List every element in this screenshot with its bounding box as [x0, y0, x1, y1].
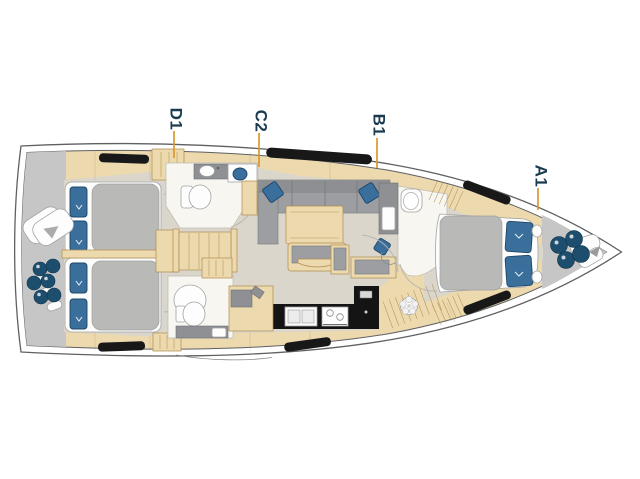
- fender-ball-icon: [41, 274, 55, 288]
- basin-blue: [233, 168, 247, 180]
- cabin-bulkhead: [62, 250, 164, 258]
- fender-ball-icon: [566, 231, 583, 248]
- stove: [322, 307, 348, 326]
- floor-plan-canvas: D1 C2 B1 A1: [0, 0, 640, 479]
- cabin-label-C2: C2: [252, 110, 271, 133]
- fender-ball-icon: [34, 290, 48, 304]
- sink-rect: [212, 328, 226, 337]
- sink-round: [200, 166, 215, 177]
- fender-ball-icon: [551, 237, 568, 254]
- cabin-label-D1: D1: [167, 108, 186, 131]
- duvet-forward: [440, 216, 502, 290]
- pillow: [70, 187, 87, 217]
- shelf-pod: [532, 225, 542, 237]
- yacht-floor-plan: D1 C2 B1 A1: [0, 0, 640, 479]
- toilet-bowl: [183, 302, 205, 326]
- duvet-starboard: [92, 261, 159, 330]
- fender-ball-icon: [47, 288, 61, 302]
- window-strip: [99, 153, 149, 164]
- shelf-pod: [532, 271, 542, 283]
- sofa-end-table: [242, 181, 257, 215]
- fender-ball-icon: [27, 276, 41, 290]
- cockpit-deck: [22, 151, 66, 347]
- window-strip: [98, 341, 145, 352]
- toilet-bowl: [189, 185, 211, 209]
- pillow: [505, 221, 533, 253]
- fender-ball-icon: [573, 246, 590, 263]
- cabin-label-B1: B1: [370, 114, 389, 137]
- fridge-vent: [360, 291, 372, 298]
- duvet-port: [92, 184, 159, 252]
- stern-cockpit: [22, 151, 66, 347]
- pillow: [505, 255, 533, 287]
- cabin-label-A1: A1: [532, 165, 551, 188]
- pillow: [70, 299, 87, 329]
- shelf: [202, 258, 232, 278]
- fender-ball-icon: [46, 259, 60, 273]
- pillow: [70, 263, 87, 293]
- fender-ball-icon: [33, 262, 47, 276]
- sink-rect: [382, 207, 395, 230]
- fender-ball-icon: [558, 252, 575, 269]
